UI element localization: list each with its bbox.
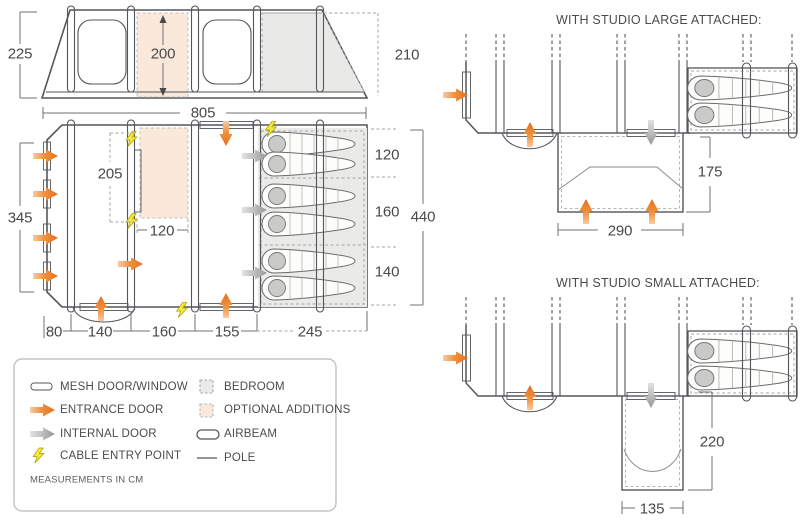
dim-plan-front-width: 345	[8, 210, 32, 227]
legend-label-optional: OPTIONAL ADDITIONS	[224, 404, 351, 416]
window-icon	[78, 20, 126, 84]
sleeping-bag-icon	[688, 366, 792, 390]
airbeam-lines	[496, 62, 687, 133]
airbeam-icon	[128, 6, 135, 92]
studio-dash-border	[626, 400, 680, 487]
studio-small-area	[622, 396, 683, 490]
optional-addition-area	[140, 128, 188, 218]
airbeam-icon	[68, 6, 75, 92]
airbeam-icon	[192, 6, 199, 92]
entrance-door-arrow	[33, 150, 58, 163]
dim-studio-small-depth: 220	[700, 434, 724, 451]
legend: MESH DOOR/WINDOW ENTRANCE DOOR INTERNAL …	[14, 359, 351, 511]
dim-bottom-4: 245	[298, 324, 322, 341]
legend-note: MEASUREMENTS IN CM	[30, 475, 143, 486]
dim-bottom-1: 140	[88, 324, 112, 341]
legend-label-airbeam: AIRBEAM	[224, 428, 277, 440]
airbeam-cut-lines	[466, 297, 792, 325]
airbeam-icon	[254, 6, 261, 92]
elevation-bedroom-area	[262, 13, 364, 92]
studio-dash-border	[562, 137, 680, 209]
floor-plan	[33, 120, 367, 322]
bedroom-swatch-icon	[200, 380, 213, 393]
entrance-door-arrow	[33, 270, 58, 283]
dim-bottom-3: 155	[215, 324, 239, 341]
dim-studio-small-width: 135	[640, 501, 664, 518]
airbeam-icon	[789, 63, 797, 138]
legend-label-pole: POLE	[224, 452, 256, 464]
airbeam-lines	[496, 325, 687, 396]
dim-elevation-inner-height: 200	[151, 46, 175, 63]
dim-bottom-2: 160	[152, 324, 176, 341]
entrance-door-arrow	[33, 232, 58, 245]
plan-dimensions: 345 205 120 80 140 160 155 245 120 160 1…	[8, 129, 435, 341]
dim-bedroom-1: 160	[375, 204, 399, 221]
legend-label-bedroom: BEDROOM	[224, 381, 285, 393]
legend-label-entrance: ENTRANCE DOOR	[60, 404, 164, 416]
studio-window-line	[558, 167, 683, 190]
airbeam-icon	[192, 120, 199, 312]
studio-door-arc	[624, 449, 681, 472]
dim-bedroom-2: 140	[375, 264, 399, 281]
dim-elevation-left-height: 225	[8, 46, 32, 63]
tent-wall	[466, 325, 690, 396]
dim-optional-length: 205	[98, 166, 122, 183]
studio-large-diagram: WITH STUDIO LARGE ATTACHED: 175 290	[443, 13, 797, 240]
sleeping-bag-icon	[688, 103, 792, 127]
entrance-door-arrow	[220, 293, 233, 318]
side-elevation	[42, 6, 367, 98]
airbeam-icon	[743, 63, 751, 138]
entrance-door-arrow	[524, 385, 537, 410]
dim-plan-total-depth: 440	[411, 209, 435, 226]
sleeping-bag-icon	[688, 339, 792, 363]
dim-optional-width: 120	[150, 223, 174, 240]
studio-large-title: WITH STUDIO LARGE ATTACHED:	[556, 13, 762, 27]
dim-studio-large-depth: 175	[698, 164, 722, 181]
airbeam-cut-lines	[466, 34, 792, 62]
dim-bottom-0: 80	[46, 324, 62, 341]
studio-small-diagram: WITH STUDIO SMALL ATTACHED: 220 135	[443, 276, 797, 518]
sleeping-bag-icon	[688, 76, 792, 100]
dim-elevation-length: 805	[191, 105, 215, 122]
cable-entry-icon	[177, 303, 188, 318]
entrance-door-arrow	[118, 258, 143, 271]
legend-label-cable: CABLE ENTRY POINT	[60, 450, 181, 462]
airbeam-icon	[789, 326, 797, 401]
diagram-canvas: 225 200 210 805	[0, 0, 800, 525]
tent-floorplan-diagram: 225 200 210 805	[0, 0, 800, 525]
entrance-door-arrow	[443, 352, 468, 365]
dim-bedroom-0: 120	[375, 147, 399, 164]
legend-label-mesh: MESH DOOR/WINDOW	[60, 381, 188, 393]
dim-elevation-rear-height: 210	[395, 47, 419, 64]
entrance-door-arrow	[443, 89, 468, 102]
elevation-dimensions: 225 200 210 805	[8, 12, 419, 122]
entrance-door-arrow	[33, 188, 58, 201]
tent-wall	[466, 62, 690, 133]
airbeam-icon	[68, 120, 75, 312]
entrance-door-arrow	[95, 296, 108, 321]
optional-additions-swatch-icon	[200, 404, 213, 417]
dim-studio-large-width: 290	[608, 223, 632, 240]
window-icon	[203, 20, 251, 84]
studio-small-title: WITH STUDIO SMALL ATTACHED:	[556, 276, 760, 290]
airbeam-icon	[743, 326, 751, 401]
entrance-door-arrow	[524, 122, 537, 147]
legend-label-internal: INTERNAL DOOR	[60, 428, 157, 440]
